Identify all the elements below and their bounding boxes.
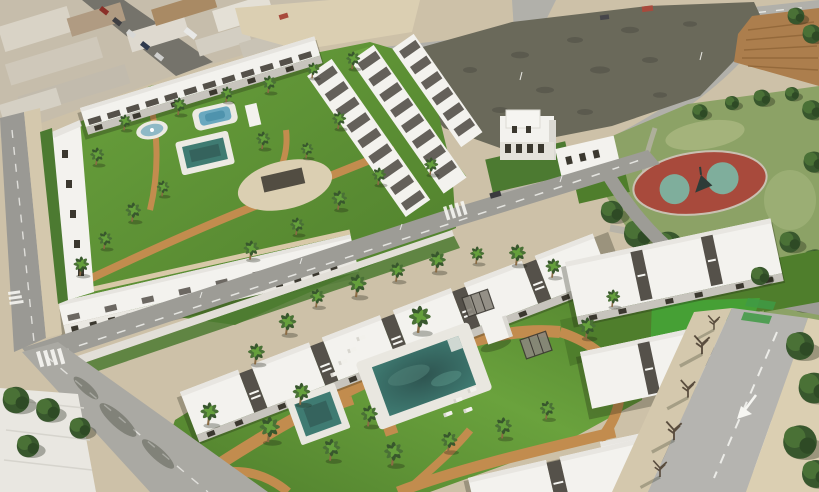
aerial-render	[0, 0, 819, 492]
